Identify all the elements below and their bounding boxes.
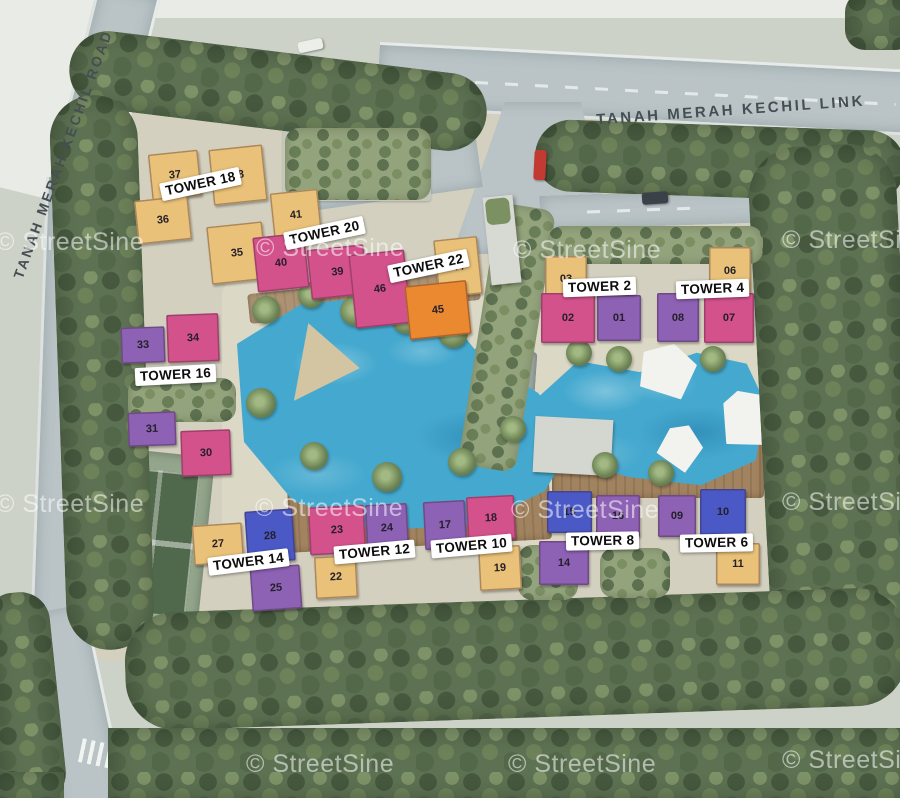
- unit-number: 07: [723, 312, 735, 324]
- palm-tree: [252, 296, 280, 324]
- watermark: © StreetSine: [255, 494, 403, 523]
- unit-block[interactable]: 33: [120, 326, 165, 364]
- unit-number: 23: [331, 524, 344, 537]
- unit-number: 25: [269, 582, 282, 595]
- tree-patch-top-corner: [845, 0, 900, 50]
- watermark: © StreetSine: [782, 746, 900, 775]
- palm-tree: [700, 346, 726, 372]
- unit-number: 27: [211, 538, 224, 551]
- unit-number: 35: [230, 246, 243, 259]
- unit-block[interactable]: 02: [541, 293, 595, 343]
- site-plan-map: 37 38 36 35 TOWER 18 41 40 39 TOWER 20 4…: [0, 0, 900, 798]
- unit-number: 02: [562, 312, 574, 324]
- unit-block[interactable]: 31: [127, 411, 176, 447]
- watermark: © StreetSine: [782, 488, 900, 517]
- watermark: © StreetSine: [511, 496, 659, 525]
- unit-number: 41: [289, 208, 302, 221]
- unit-number: 34: [187, 332, 200, 344]
- unit-block[interactable]: 10: [700, 489, 746, 535]
- watermark: © StreetSine: [782, 226, 900, 255]
- tree-patch-bottom-left: [0, 772, 64, 798]
- unit-number: 01: [613, 312, 625, 324]
- unit-number: 31: [146, 423, 159, 435]
- watermark: © StreetSine: [513, 236, 661, 265]
- internal-lane-marking: [587, 207, 693, 214]
- unit-number: 46: [373, 282, 386, 295]
- unit-block[interactable]: 09: [658, 495, 696, 537]
- palm-tree: [500, 416, 526, 442]
- palm-tree: [606, 346, 632, 372]
- unit-block[interactable]: 30: [180, 429, 232, 477]
- unit-block[interactable]: 08: [657, 293, 699, 342]
- palm-tree: [448, 448, 476, 476]
- palm-tree: [648, 460, 674, 486]
- tower-label[interactable]: TOWER 8: [566, 531, 640, 550]
- unit-block[interactable]: 34: [166, 313, 220, 363]
- gatehouse-green-roof: [485, 197, 512, 225]
- palm-tree: [566, 340, 592, 366]
- unit-number: 09: [671, 510, 683, 522]
- palm-tree: [592, 452, 618, 478]
- unit-block[interactable]: 07: [704, 293, 754, 343]
- unit-number: 14: [558, 557, 570, 569]
- watermark: © StreetSine: [508, 750, 656, 779]
- unit-number: 22: [330, 571, 343, 584]
- unit-block[interactable]: 45: [404, 280, 471, 340]
- white-car: [297, 38, 324, 54]
- unit-block[interactable]: 25: [250, 564, 303, 611]
- unit-number: 11: [732, 558, 744, 570]
- unit-number: 24: [381, 522, 394, 535]
- red-car: [533, 150, 547, 181]
- unit-block[interactable]: 01: [597, 295, 641, 341]
- unit-number: 33: [137, 339, 150, 351]
- unit-number: 39: [331, 265, 344, 278]
- unit-number: 10: [717, 506, 729, 518]
- unit-number: 18: [485, 512, 498, 525]
- watermark: © StreetSine: [0, 490, 144, 519]
- tower-label[interactable]: TOWER 4: [676, 279, 750, 300]
- watermark: © StreetSine: [256, 234, 404, 263]
- unit-number: 17: [439, 519, 452, 532]
- unit-number: 30: [200, 447, 213, 459]
- tower-label[interactable]: TOWER 2: [563, 277, 637, 298]
- tower-label[interactable]: TOWER 6: [680, 533, 754, 552]
- garden-towers-8-6: [600, 548, 670, 598]
- palm-tree: [300, 442, 328, 470]
- unit-number: 19: [494, 562, 507, 575]
- watermark: © StreetSine: [0, 228, 144, 257]
- unit-number: 45: [431, 303, 444, 316]
- watermark: © StreetSine: [246, 750, 394, 779]
- dark-car: [642, 191, 669, 205]
- unit-number: 36: [156, 213, 169, 226]
- palm-tree: [372, 462, 402, 492]
- unit-number: 06: [724, 265, 736, 277]
- unit-number: 28: [263, 530, 276, 543]
- palm-tree: [246, 388, 276, 418]
- unit-number: 08: [672, 312, 684, 324]
